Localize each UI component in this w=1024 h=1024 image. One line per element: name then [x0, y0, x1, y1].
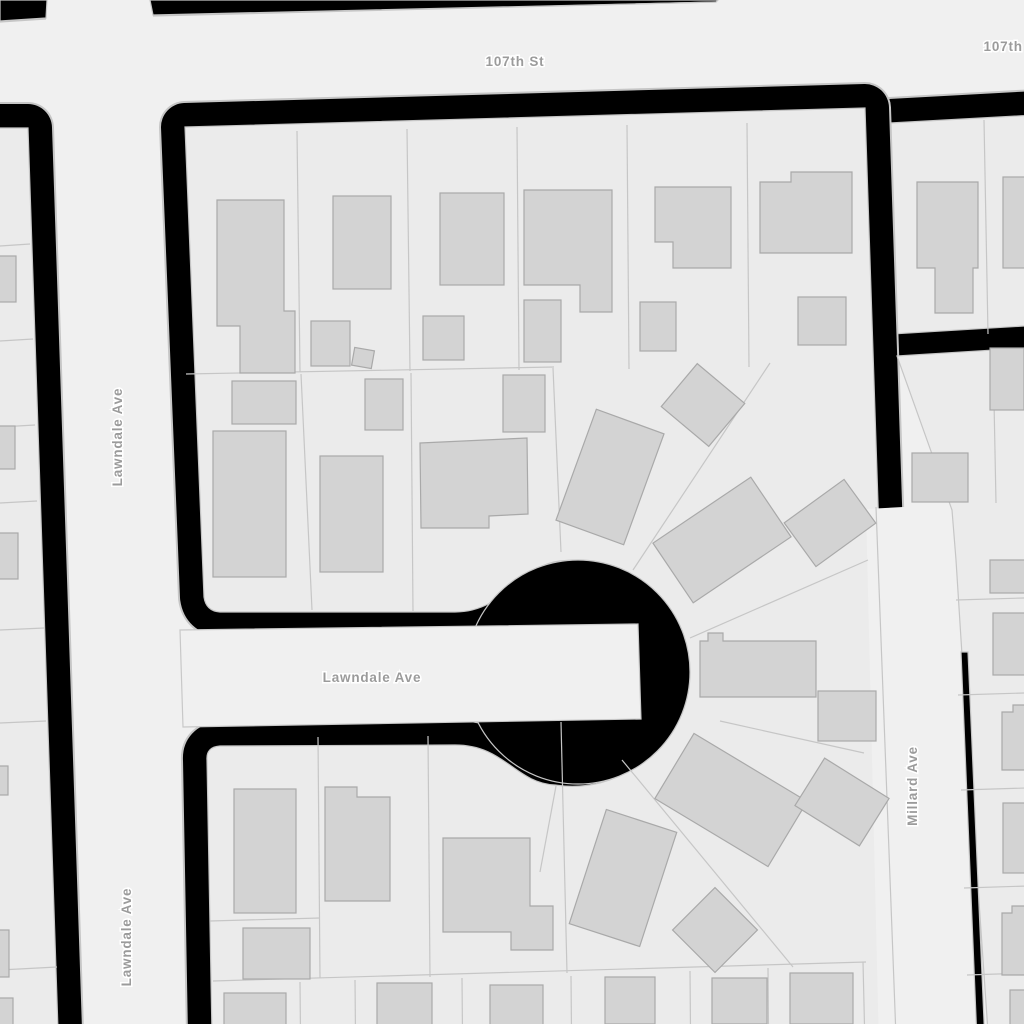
building [524, 300, 561, 362]
107th-north-casing-left [0, 0, 47, 21]
building [423, 316, 464, 360]
building [503, 375, 545, 432]
building [0, 256, 16, 302]
building [377, 983, 432, 1024]
street-label-lawndale-ave-culdesac: Lawndale Ave [323, 670, 422, 685]
building [990, 560, 1024, 593]
street-label-lawndale-ave-lower: Lawndale Ave [119, 888, 134, 987]
building [640, 302, 676, 351]
building [700, 633, 816, 697]
building [0, 533, 18, 579]
building [420, 438, 528, 528]
building [352, 347, 375, 368]
building [605, 977, 655, 1024]
street-label-107th-st-edge: 107th St [984, 39, 1024, 54]
street-label-lawndale-ave-upper: Lawndale Ave [110, 388, 125, 487]
building [490, 985, 543, 1024]
building [320, 456, 383, 572]
building [760, 172, 852, 253]
building [990, 348, 1024, 410]
building [440, 193, 504, 285]
building [365, 379, 403, 430]
building [243, 928, 310, 979]
building [1003, 803, 1024, 873]
building [0, 930, 9, 977]
building [224, 993, 286, 1024]
map-canvas[interactable]: 107th St 107th St Lawndale Ave Lawndale … [0, 0, 1024, 1024]
building [798, 297, 846, 345]
building [1002, 705, 1024, 770]
building [213, 431, 286, 577]
building [234, 789, 296, 913]
building [0, 998, 13, 1024]
building [0, 766, 8, 795]
building [712, 978, 767, 1024]
building [333, 196, 391, 289]
building [1003, 177, 1024, 268]
building [790, 973, 853, 1024]
building [311, 321, 350, 366]
building [993, 613, 1024, 675]
street-label-millard-ave: Millard Ave [905, 746, 920, 826]
building [325, 787, 390, 901]
building [912, 453, 968, 502]
building [1010, 990, 1024, 1024]
building [0, 426, 15, 469]
building [1002, 906, 1024, 975]
building [232, 381, 296, 424]
building [818, 691, 876, 741]
street-label-107th-st: 107th St [486, 54, 545, 69]
